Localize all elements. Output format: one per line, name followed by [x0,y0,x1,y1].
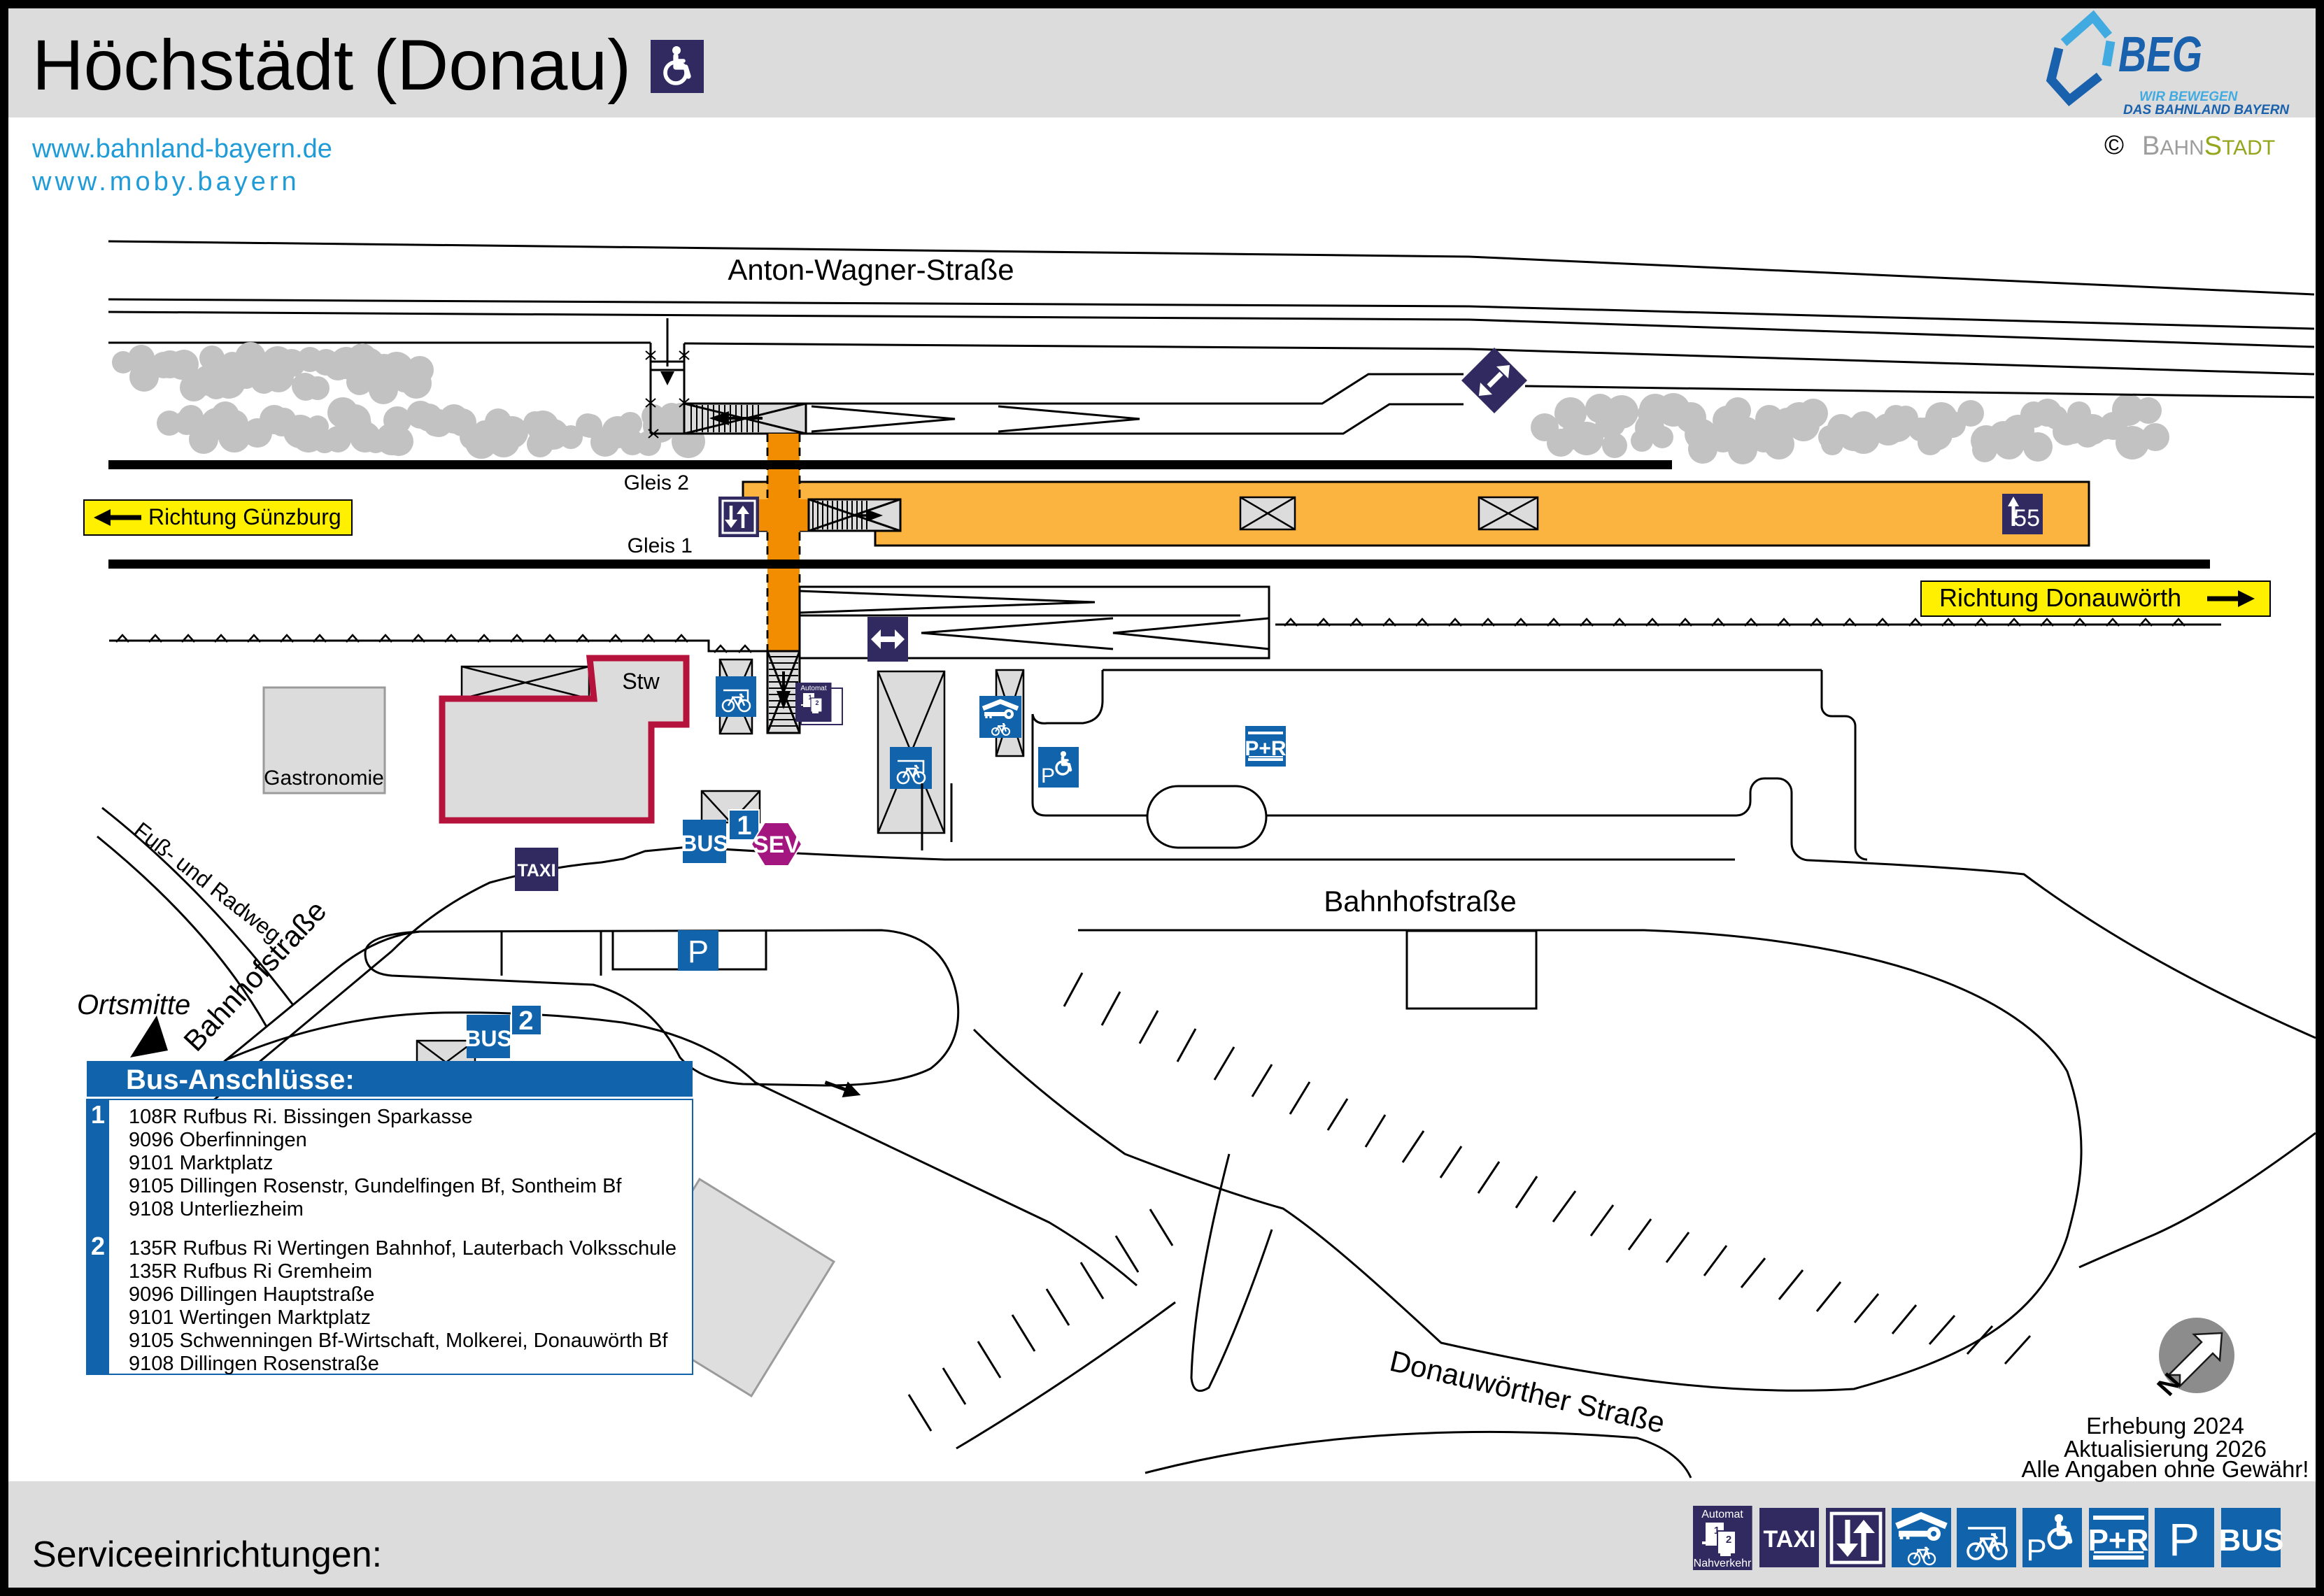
svg-text:2: 2 [91,1232,105,1260]
svg-text:P: P [1041,764,1055,788]
svg-text:Höchstädt (Donau): Höchstädt (Donau) [32,25,631,105]
svg-text:Nahverkehr: Nahverkehr [1694,1558,1752,1569]
svg-text:P: P [688,934,709,969]
svg-text:Bahnhofstraße: Bahnhofstraße [1324,885,1517,918]
svg-text:Gleis 2: Gleis 2 [624,471,689,494]
svg-text:9096 Oberfinningen: 9096 Oberfinningen [129,1129,307,1151]
svg-text:9101 Marktplatz: 9101 Marktplatz [129,1152,273,1174]
svg-text:2: 2 [1726,1534,1731,1546]
svg-text:Alle Angaben ohne Gewähr!: Alle Angaben ohne Gewähr! [2022,1456,2309,1482]
svg-text:2: 2 [518,1006,533,1036]
svg-text:Ortsmitte: Ortsmitte [77,990,190,1020]
svg-text:WIR BEWEGEN: WIR BEWEGEN [2139,90,2239,104]
svg-text:Stw: Stw [622,669,660,694]
svg-text:Bus-Anschlüsse:: Bus-Anschlüsse: [126,1064,355,1095]
svg-text:Gastronomie: Gastronomie [264,767,384,790]
svg-text:9096 Dillingen Hauptstraße: 9096 Dillingen Hauptstraße [129,1283,374,1306]
svg-text:P: P [2169,1513,2199,1565]
svg-text:BUS: BUS [681,831,728,856]
svg-text:108R Rufbus Ri. Bissingen Spar: 108R Rufbus Ri. Bissingen Sparkasse [129,1106,473,1128]
svg-text:9108 Unterliezheim: 9108 Unterliezheim [129,1198,304,1220]
svg-text:Richtung Günzburg: Richtung Günzburg [148,504,341,529]
svg-text:55: 55 [2013,505,2040,532]
svg-text:TAXI: TAXI [517,861,555,881]
svg-text:SEV: SEV [753,832,800,858]
svg-text:1: 1 [91,1100,105,1129]
svg-text:Anton-Wagner-Straße: Anton-Wagner-Straße [728,253,1014,286]
svg-text:BAHNSTADT: BAHNSTADT [2142,131,2275,161]
svg-text:2: 2 [815,699,819,706]
svg-text:Erhebung 2024: Erhebung 2024 [2086,1413,2244,1439]
svg-text:www.bahnland-bayern.de: www.bahnland-bayern.de [31,134,332,164]
svg-text:P: P [2026,1533,2046,1567]
svg-text:9108 Dillingen Rosenstraße: 9108 Dillingen Rosenstraße [129,1353,379,1375]
svg-text:9105 Dillingen Rosenstr, Gunde: 9105 Dillingen Rosenstr, Gundelfingen Bf… [129,1175,622,1197]
svg-text:Automat: Automat [1701,1509,1743,1520]
svg-text:Gleis 1: Gleis 1 [628,534,693,557]
svg-text:BEG: BEG [2118,27,2202,82]
svg-text:Automat: Automat [800,685,826,692]
svg-text:BUS: BUS [465,1026,512,1051]
svg-text:©: © [2104,131,2124,160]
svg-text:TAXI: TAXI [1764,1526,1816,1553]
svg-text:DAS BAHNLAND BAYERN: DAS BAHNLAND BAYERN [2123,103,2290,117]
svg-text:1: 1 [737,811,751,841]
svg-text:Serviceeinrichtungen:: Serviceeinrichtungen: [32,1534,382,1575]
svg-text:9101 Wertingen Marktplatz: 9101 Wertingen Marktplatz [129,1306,371,1329]
svg-text:BUS: BUS [2219,1523,2284,1558]
svg-text:135R Rufbus Ri Wertingen Bahnh: 135R Rufbus Ri Wertingen Bahnhof, Lauter… [129,1237,676,1260]
svg-text:9105 Schwenningen Bf-Wirtschaf: 9105 Schwenningen Bf-Wirtschaft, Molkere… [129,1330,668,1352]
svg-text:135R Rufbus Ri Gremheim: 135R Rufbus Ri Gremheim [129,1260,372,1283]
svg-text:www.moby.bayern: www.moby.bayern [31,167,300,197]
svg-text:Richtung Donauwörth: Richtung Donauwörth [1939,583,2181,612]
